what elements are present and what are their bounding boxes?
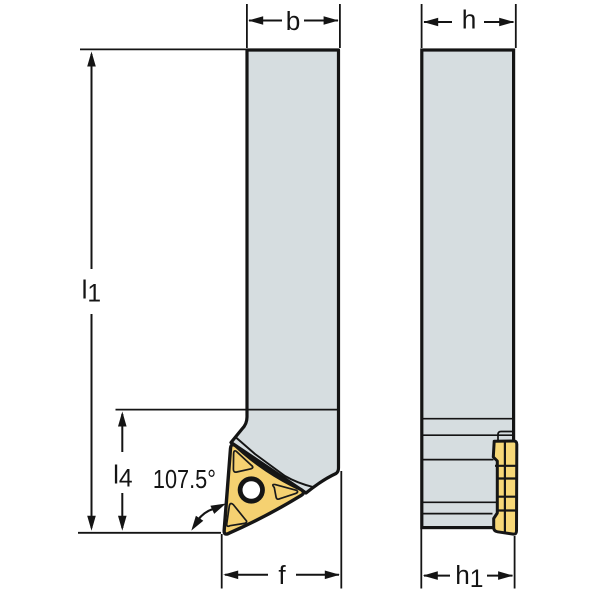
- svg-text:l4: l4: [113, 459, 133, 492]
- svg-text:h: h: [462, 5, 477, 35]
- svg-text:b: b: [286, 6, 301, 36]
- svg-text:f: f: [278, 560, 286, 590]
- svg-text:l1: l1: [82, 274, 102, 307]
- svg-text:h1: h1: [455, 560, 483, 593]
- svg-text:107.5°: 107.5°: [153, 464, 216, 494]
